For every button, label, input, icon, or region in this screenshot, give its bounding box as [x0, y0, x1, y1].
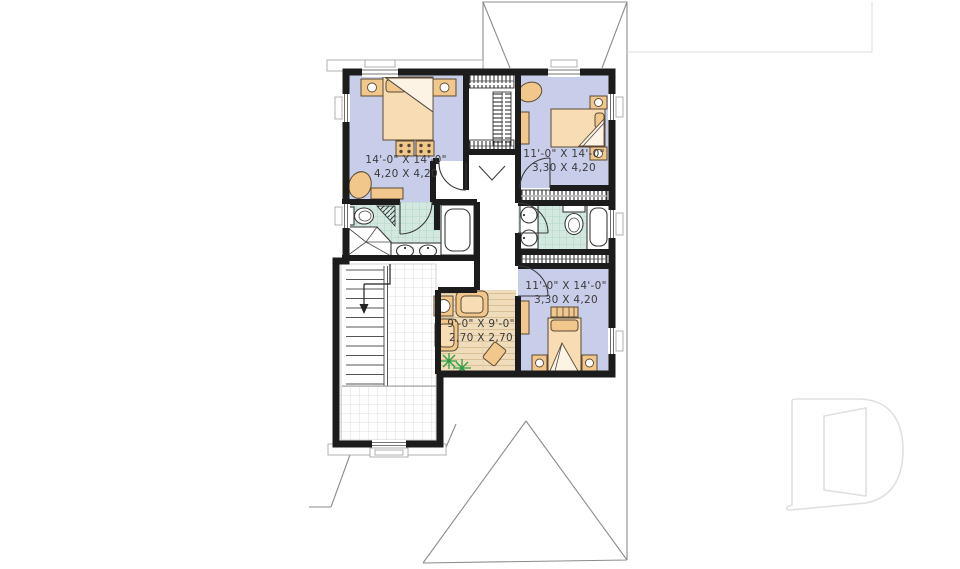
roof-top-dormer: [483, 2, 627, 68]
master-bedroom-label-imperial: 14'-0" X 14'-0": [365, 154, 446, 166]
master-bath-tub: [441, 205, 474, 255]
floor-plan-image: 14'-0" X 14'-0" 4,20 X 4,20 11'-0" X 14'…: [0, 0, 960, 569]
logo-inner-door: [824, 408, 866, 496]
window-master-top: [362, 60, 398, 77]
roof-bottom-left: [309, 452, 351, 507]
roof-top-right-faint: [627, 2, 872, 52]
foyer-tiles-bottom: [340, 386, 436, 441]
floor-plan-svg: 14'-0" X 14'-0" 4,20 X 4,20 11'-0" X 14'…: [0, 0, 960, 569]
builder-logo-d-watermark: [787, 399, 903, 510]
window-bed3-right: [608, 328, 623, 354]
window-bed2-right: [608, 94, 623, 120]
master-bedroom-label-metric: 4,20 X 4,20: [374, 168, 438, 180]
armchair-cushion: [461, 296, 483, 313]
window-foyer-bottom: [370, 440, 408, 457]
hall-bath-tub: [587, 204, 610, 251]
foyer-tiles-landing: [388, 264, 436, 386]
master-bath-toilet: [347, 207, 374, 225]
window-master-left: [335, 94, 350, 122]
bedroom3-label-metric: 3,30 X 4,20: [534, 294, 598, 306]
pillow: [551, 320, 578, 331]
bedroom2-label-imperial: 11'-0" X 14'-0": [523, 148, 604, 160]
window-bed2-top: [548, 60, 580, 77]
hall-bath-vanity: [520, 204, 538, 249]
bedroom3-label-imperial: 11'-0" X 14'-0": [525, 280, 606, 292]
window-bath-left: [335, 204, 350, 228]
family-room-label-imperial: 9'-0" X 9'-0": [447, 318, 515, 330]
family-room-label-metric: 2,70 X 2,70: [449, 332, 513, 344]
roof-bottom-hip: [423, 421, 627, 563]
bedroom2-label-metric: 3,30 X 4,20: [532, 162, 596, 174]
hall-bath-toilet: [563, 204, 585, 235]
dresser: [371, 188, 403, 199]
window-bath2-right: [608, 210, 623, 238]
